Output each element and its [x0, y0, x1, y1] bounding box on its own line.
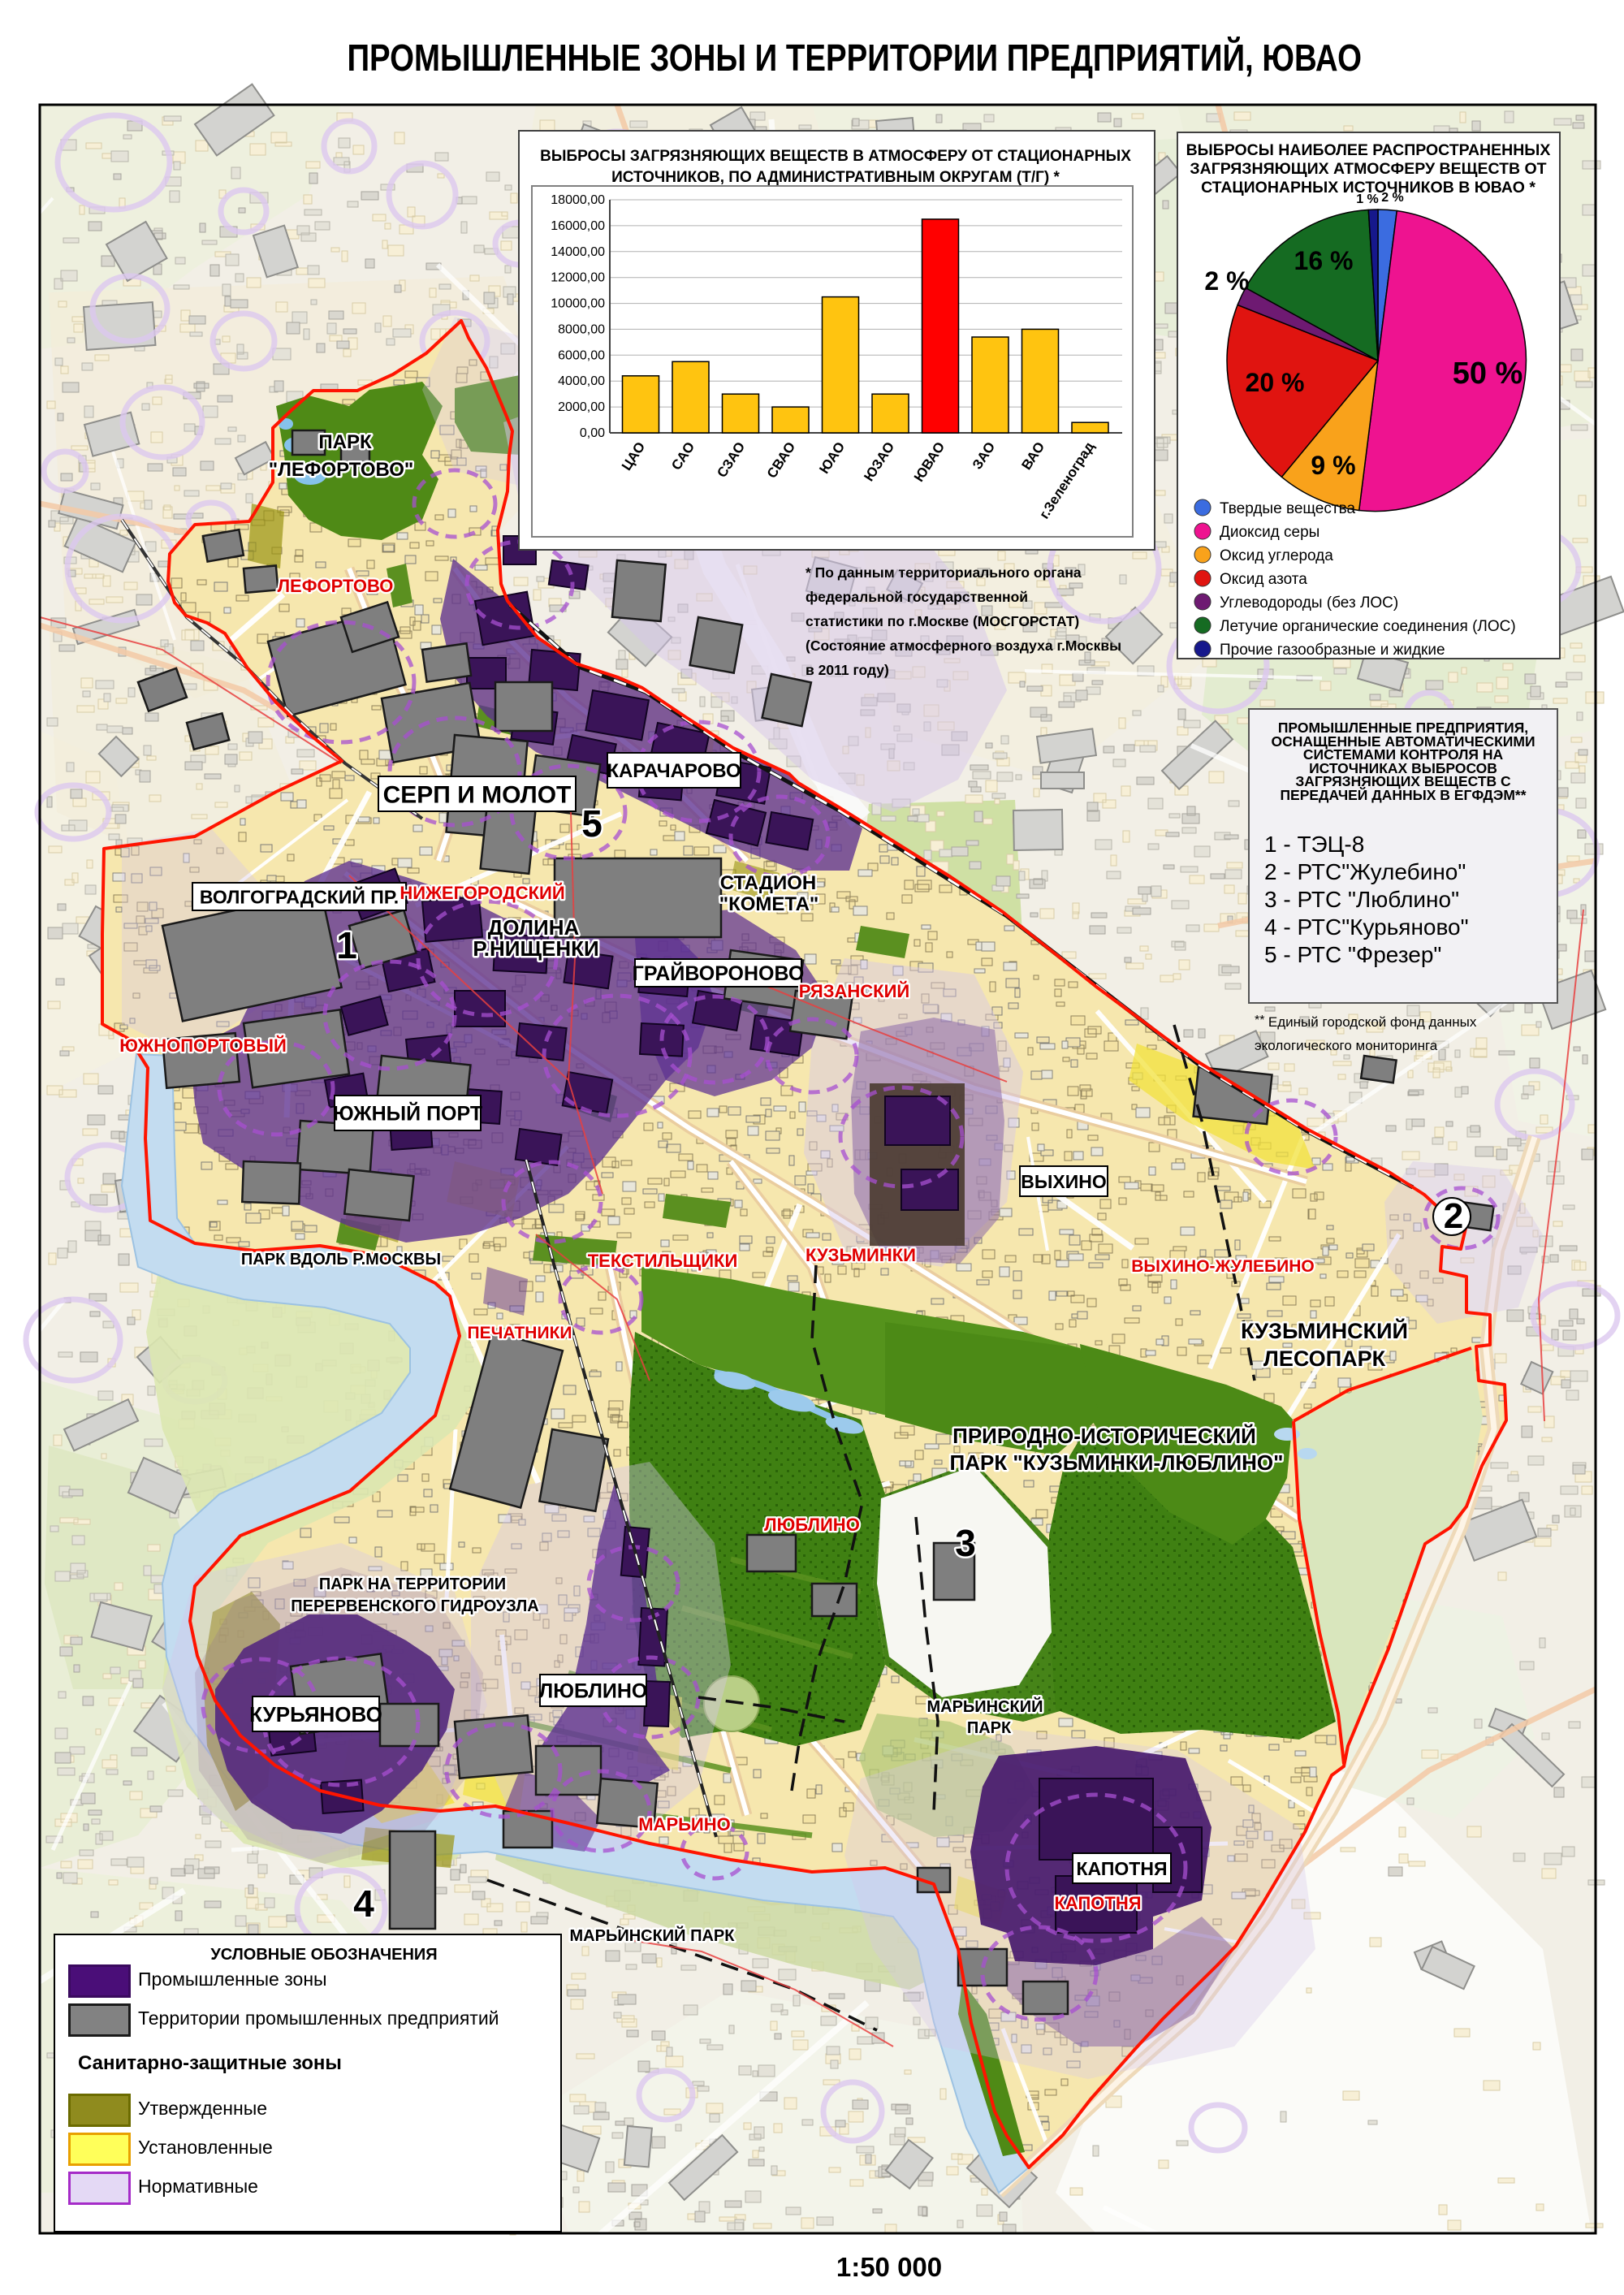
svg-text:КАПОТНЯ: КАПОТНЯ — [1054, 1893, 1141, 1913]
svg-text:НИЖЕГОРОДСКИЙ: НИЖЕГОРОДСКИЙ — [400, 883, 564, 903]
svg-text:1 %: 1 % — [1356, 192, 1379, 206]
svg-text:14000,00: 14000,00 — [551, 245, 605, 259]
svg-text:ЗАГРЯЗНЯЮЩИХ АТМОСФЕРУ ВЕЩЕСТВ: ЗАГРЯЗНЯЮЩИХ АТМОСФЕРУ ВЕЩЕСТВ ОТ — [1190, 160, 1546, 178]
svg-text:ПАРК: ПАРК — [318, 431, 372, 453]
svg-text:ЮЖНОПОРТОВЫЙ: ЮЖНОПОРТОВЫЙ — [119, 1035, 287, 1056]
svg-text:16 %: 16 % — [1294, 246, 1354, 275]
svg-text:Твердые вещества: Твердые вещества — [1220, 500, 1355, 517]
svg-text:ВОЛГОГРАДСКИЙ ПР.: ВОЛГОГРАДСКИЙ ПР. — [200, 885, 399, 907]
svg-text:16000,00: 16000,00 — [551, 219, 605, 233]
svg-text:ВЫБРОСЫ НАИБОЛЕЕ РАСПРОСТРАНЕН: ВЫБРОСЫ НАИБОЛЕЕ РАСПРОСТРАНЕННЫХ — [1186, 141, 1551, 159]
svg-text:0,00: 0,00 — [580, 426, 605, 440]
svg-text:4000,00: 4000,00 — [558, 374, 605, 388]
svg-text:20 %: 20 % — [1246, 368, 1305, 397]
svg-text:4: 4 — [353, 1882, 374, 1925]
svg-text:10000,00: 10000,00 — [551, 297, 605, 311]
svg-text:8000,00: 8000,00 — [558, 322, 605, 336]
svg-text:ВЫХИНО: ВЫХИНО — [1021, 1171, 1107, 1192]
svg-text:5: 5 — [581, 802, 603, 845]
svg-text:ПЕЧАТНИКИ: ПЕЧАТНИКИ — [468, 1324, 572, 1342]
svg-text:Р.НИЩЕНКИ: Р.НИЩЕНКИ — [473, 936, 598, 961]
svg-text:КУЗЬМИНСКИЙ: КУЗЬМИНСКИЙ — [1241, 1318, 1408, 1343]
svg-text:ВЫХИНО-ЖУЛЕБИНО: ВЫХИНО-ЖУЛЕБИНО — [1131, 1257, 1315, 1276]
svg-text:Прочие газообразные и жидкие: Прочие газообразные и жидкие — [1220, 642, 1445, 658]
svg-text:"КОМЕТА": "КОМЕТА" — [719, 893, 819, 915]
svg-text:Оксид углерода: Оксид углерода — [1220, 547, 1333, 564]
svg-text:ЛЕСОПАРК: ЛЕСОПАРК — [1263, 1346, 1386, 1371]
svg-text:50 %: 50 % — [1453, 357, 1523, 391]
svg-text:Оксид азота: Оксид азота — [1220, 571, 1307, 588]
svg-text:КАПОТНЯ: КАПОТНЯ — [1077, 1858, 1168, 1879]
svg-text:ПРИРОДНО-ИСТОРИЧЕСКИЙ: ПРИРОДНО-ИСТОРИЧЕСКИЙ — [952, 1424, 1256, 1448]
svg-text:ПЕРЕРВЕНСКОГО ГИДРОУЗЛА: ПЕРЕРВЕНСКОГО ГИДРОУЗЛА — [291, 1597, 538, 1615]
svg-text:КАРАЧАРОВО: КАРАЧАРОВО — [607, 760, 741, 782]
svg-text:"ЛЕФОРТОВО": "ЛЕФОРТОВО" — [269, 459, 414, 481]
svg-text:Диоксид серы: Диоксид серы — [1220, 524, 1319, 541]
svg-text:2 %: 2 % — [1381, 191, 1404, 205]
svg-text:КУРЬЯНОВО: КУРЬЯНОВО — [249, 1702, 382, 1727]
svg-text:КУЗЬМИНКИ: КУЗЬМИНКИ — [806, 1245, 916, 1265]
svg-text:ЮЖНЫЙ ПОРТ: ЮЖНЫЙ ПОРТ — [333, 1101, 482, 1126]
svg-text:9 %: 9 % — [1311, 451, 1355, 480]
svg-text:Углеводороды (без ЛОС): Углеводороды (без ЛОС) — [1220, 594, 1398, 612]
svg-text:МАРЬИНСКИЙ: МАРЬИНСКИЙ — [926, 1696, 1043, 1716]
svg-text:6000,00: 6000,00 — [558, 348, 605, 362]
svg-text:1: 1 — [336, 924, 357, 966]
svg-text:МАРЬИНСКИЙ ПАРК: МАРЬИНСКИЙ ПАРК — [570, 1925, 736, 1945]
svg-text:ПАРК ВДОЛЬ Р.МОСКВЫ: ПАРК ВДОЛЬ Р.МОСКВЫ — [241, 1251, 441, 1269]
svg-text:ВЫБРОСЫ ЗАГРЯЗНЯЮЩИХ ВЕЩЕСТВ В: ВЫБРОСЫ ЗАГРЯЗНЯЮЩИХ ВЕЩЕСТВ В АТМОСФЕРУ… — [540, 148, 1131, 165]
svg-text:ПАРК: ПАРК — [967, 1719, 1012, 1737]
svg-text:ЛЕФОРТОВО: ЛЕФОРТОВО — [278, 576, 394, 596]
svg-text:3: 3 — [955, 1522, 976, 1564]
svg-text:ЛЮБЛИНО: ЛЮБЛИНО — [539, 1680, 648, 1703]
svg-text:ТЕКСТИЛЬЩИКИ: ТЕКСТИЛЬЩИКИ — [588, 1251, 738, 1271]
svg-text:2000,00: 2000,00 — [558, 400, 605, 414]
svg-text:СТАДИОН: СТАДИОН — [720, 872, 816, 894]
svg-text:2: 2 — [1444, 1196, 1463, 1236]
svg-text:МАРЬИНО: МАРЬИНО — [638, 1814, 731, 1835]
svg-text:12000,00: 12000,00 — [551, 271, 605, 285]
svg-text:СЕРП И МОЛОТ: СЕРП И МОЛОТ — [383, 781, 572, 808]
svg-text:18000,00: 18000,00 — [551, 193, 605, 207]
svg-text:2 %: 2 % — [1204, 266, 1249, 296]
svg-text:ИСТОЧНИКОВ, ПО АДМИНИСТРАТИВНЫ: ИСТОЧНИКОВ, ПО АДМИНИСТРАТИВНЫМ ОКРУГАМ … — [611, 169, 1060, 186]
svg-text:ПАРК НА ТЕРРИТОРИИ: ПАРК НА ТЕРРИТОРИИ — [319, 1575, 506, 1593]
svg-text:РЯЗАНСКИЙ: РЯЗАНСКИЙ — [799, 981, 909, 1001]
svg-text:ПАРК "КУЗЬМИНКИ-ЛЮБЛИНО": ПАРК "КУЗЬМИНКИ-ЛЮБЛИНО" — [950, 1450, 1284, 1475]
svg-text:Летучие органические соединени: Летучие органические соединения (ЛОС) — [1220, 618, 1516, 635]
svg-text:ЛЮБЛИНО: ЛЮБЛИНО — [764, 1515, 860, 1535]
svg-text:ГРАЙВОРОНОВО: ГРАЙВОРОНОВО — [633, 961, 805, 985]
